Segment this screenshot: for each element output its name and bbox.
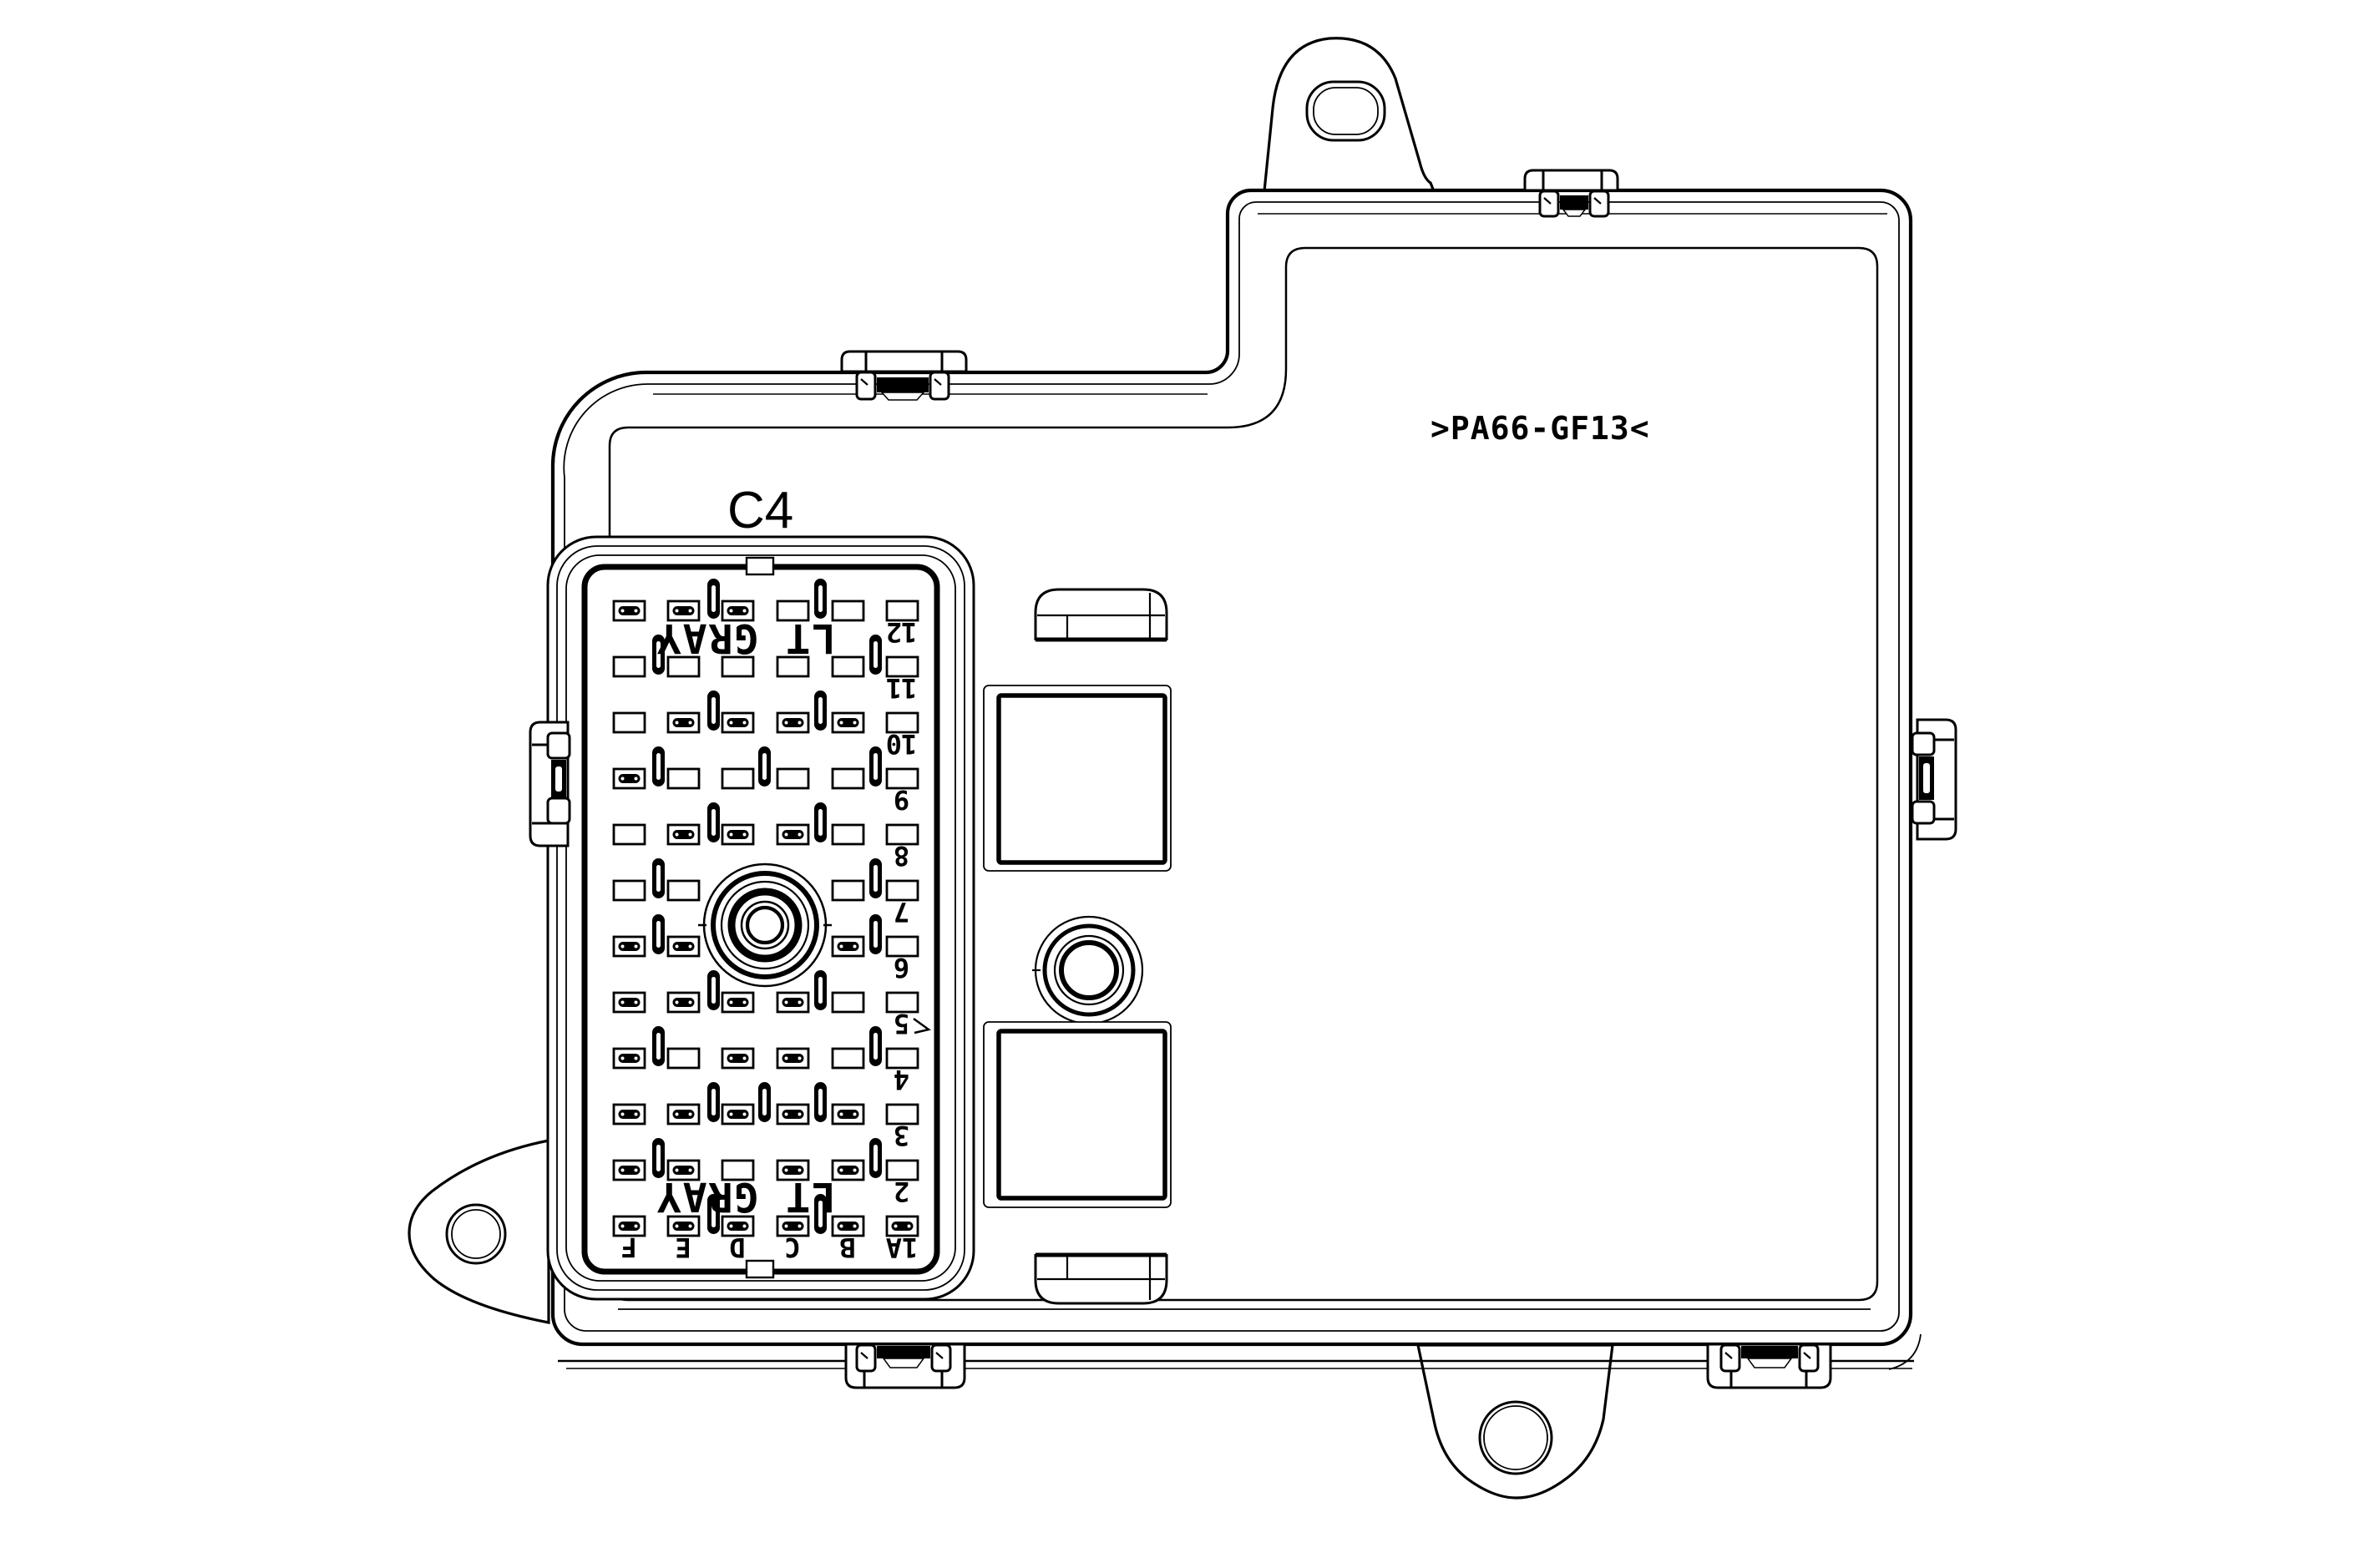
svg-text:F: F [620, 1232, 636, 1263]
latch-clip-bottom-left [846, 1344, 965, 1388]
square-opening-upper [984, 685, 1171, 871]
svg-text:4: 4 [894, 1064, 909, 1095]
svg-text:7: 7 [894, 896, 909, 928]
svg-text:11: 11 [887, 672, 918, 704]
svg-text:2: 2 [894, 1176, 909, 1207]
lt-gray-label-bottom: LT GRAY [656, 1173, 836, 1220]
svg-text:10: 10 [887, 728, 918, 760]
svg-text:E: E [675, 1232, 691, 1263]
svg-text:9: 9 [894, 784, 909, 816]
lt-gray-label-top: LT GRAY [656, 615, 836, 661]
latch-clip-bottom-right [1708, 1344, 1831, 1388]
material-marking-label: >PA66-GF13< [1431, 410, 1650, 447]
fuse-block-cover-drawing: LT GRAY LT GRAY 12 11 10 9 8 7 6 5 4 3 2… [0, 0, 2380, 1558]
svg-text:8: 8 [894, 840, 909, 872]
svg-text:D: D [729, 1232, 745, 1263]
svg-text:C: C [784, 1232, 800, 1263]
cad-line-drawing: LT GRAY LT GRAY 12 11 10 9 8 7 6 5 4 3 2… [0, 0, 2380, 1558]
svg-text:5: 5 [894, 1008, 909, 1040]
mounting-ear-top [1264, 38, 1434, 191]
polarize-notch-bottom [747, 1261, 773, 1277]
svg-text:6: 6 [894, 952, 909, 984]
c4-connector: LT GRAY LT GRAY 12 11 10 9 8 7 6 5 4 3 2… [548, 537, 974, 1299]
square-opening-lower [984, 1022, 1171, 1207]
svg-text:B: B [839, 1232, 855, 1263]
corner-cavity-label: 1A [886, 1232, 919, 1263]
bridge-tab-top [1036, 589, 1167, 640]
latch-clip-right-side [1912, 720, 1956, 839]
mounting-ear-bottom-left [409, 1141, 549, 1323]
svg-text:12: 12 [887, 616, 918, 648]
bridge-tab-bottom [1036, 1254, 1167, 1303]
connector-designator-label: C4 [727, 482, 793, 539]
polarize-notch-top [747, 558, 773, 574]
svg-text:3: 3 [894, 1120, 909, 1151]
latch-clip-left-side [530, 722, 570, 846]
